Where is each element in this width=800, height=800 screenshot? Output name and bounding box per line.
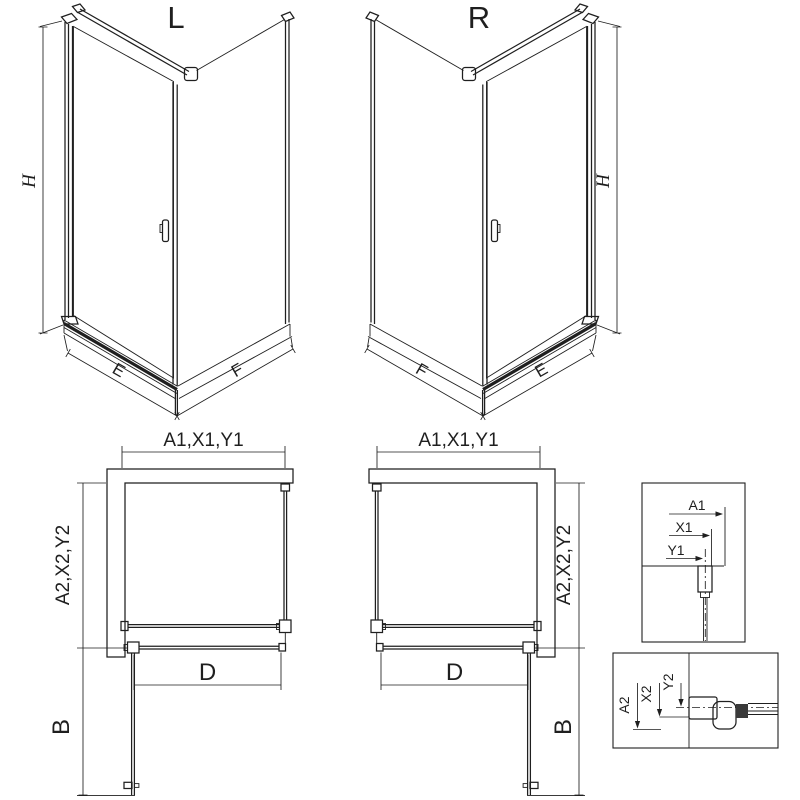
iso-view-left: L H E F	[19, 0, 295, 420]
plan-left-geometry	[77, 446, 291, 796]
detail-width-a1-label: A1	[688, 497, 705, 513]
detail-depth-y2-label: Y2	[660, 673, 676, 690]
plan-view-right: A1,X1,Y1 A2,X2,Y2 D B	[369, 430, 585, 796]
wall-hatch-left-plan	[107, 469, 293, 657]
detail-depth-a2-label: A2	[616, 696, 632, 713]
technical-drawing-page: L H E F R H E F A1,X1,Y1 A2,X2,Y2 D B A1…	[0, 0, 800, 800]
plan-right-depth-label: A2,X2,Y2	[554, 525, 575, 605]
detail-width-x1-label: X1	[675, 519, 692, 535]
detail-depth-x2-label: X2	[638, 685, 654, 702]
height-dim-label-left: H	[19, 173, 40, 189]
plan-left-depth-label: A2,X2,Y2	[53, 525, 74, 605]
plan-left-door-label: D	[199, 659, 216, 686]
height-dim-label-right: H	[593, 173, 614, 189]
detail-width-y1-label: Y1	[667, 542, 684, 558]
detail-view-depth-offsets: A2 X2 Y2	[613, 653, 778, 748]
wall-hatch-right-plan	[369, 469, 555, 657]
iso-view-right: R H E F	[365, 0, 622, 420]
plan-left-swing-label: B	[48, 719, 75, 735]
plan-right-door-label: D	[446, 659, 463, 686]
plan-right-width-label: A1,X1,Y1	[418, 430, 498, 451]
plan-view-left: A1,X1,Y1 A2,X2,Y2 D B	[48, 430, 293, 796]
plan-right-swing-label: B	[550, 719, 577, 735]
iso-left-title: L	[167, 0, 184, 35]
iso-left-geometry	[39, 4, 296, 420]
detail-view-width-offsets: A1 X1 Y1	[642, 483, 745, 642]
shower-enclosure-diagram: L H E F R H E F A1,X1,Y1 A2,X2,Y2 D B A1…	[0, 0, 800, 800]
plan-right-geometry	[371, 446, 585, 796]
plan-left-width-label: A1,X1,Y1	[163, 430, 243, 451]
iso-right-title: R	[468, 0, 490, 35]
iso-right-geometry	[365, 4, 622, 420]
